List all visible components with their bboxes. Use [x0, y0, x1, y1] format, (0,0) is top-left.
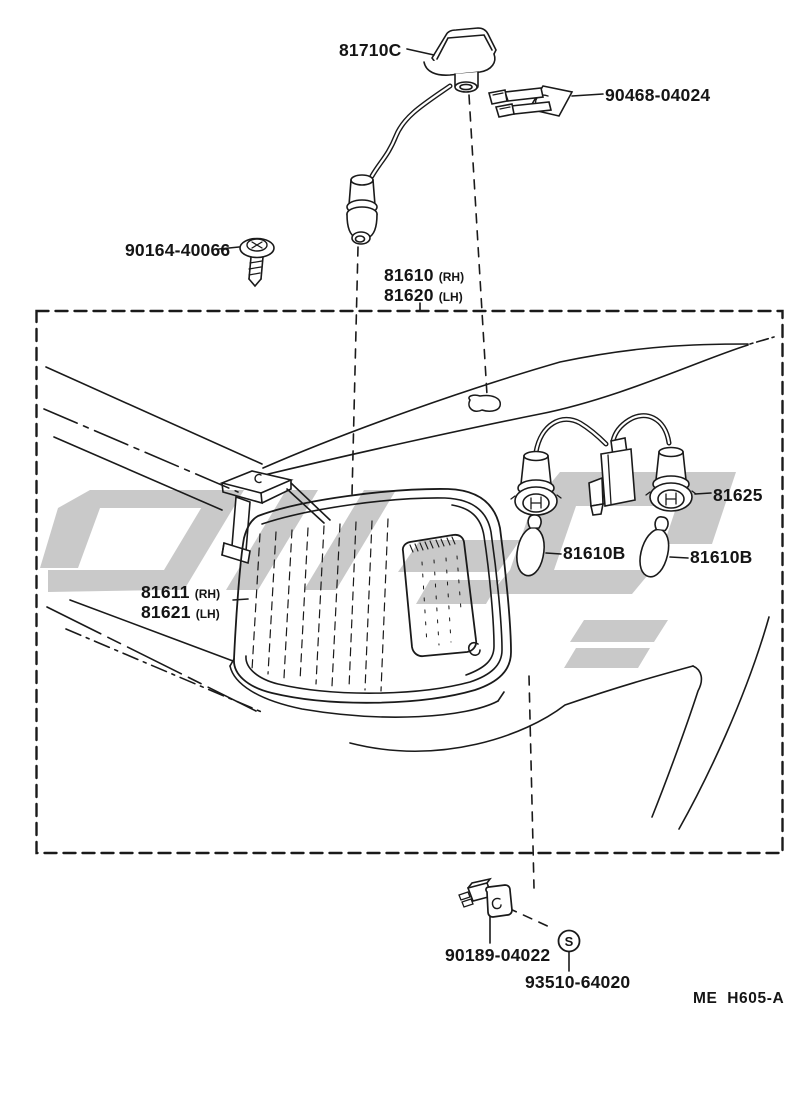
diagram-line-art: [0, 0, 800, 1106]
label-lamp-assy: 81610 (RH) 81620 (LH): [384, 266, 464, 306]
screw-drawing: [240, 239, 274, 287]
label-lamp-assy-lh: 81620 (LH): [384, 286, 464, 306]
label-clip: 90468-04024: [605, 86, 710, 104]
label-screw-set: 93510-64020: [525, 973, 630, 991]
label-marker-lamp: 81710C: [339, 41, 402, 59]
parts-diagram-page: 81710C 90468-04024 90164-40066 81610 (RH…: [0, 0, 800, 1106]
retainer-clip-drawing: [459, 879, 512, 917]
label-lens-lh: 81621 (LH): [141, 603, 220, 623]
label-bulb-right: 81610B: [690, 548, 753, 566]
page-code: ME H605-A: [693, 990, 784, 1008]
clip-drawing: [489, 86, 572, 117]
bulb-right: [638, 515, 672, 578]
s-symbol-letter: S: [561, 934, 577, 949]
label-lamp-assy-rh: 81610 (RH): [384, 266, 464, 286]
label-lens-rh: 81611 (RH): [141, 583, 220, 603]
marker-lamp-drawing: [347, 28, 496, 244]
bulb-left: [517, 515, 544, 576]
label-lens: 81611 (RH) 81621 (LH): [141, 583, 220, 623]
label-bulb-left: 81610B: [563, 544, 626, 562]
label-socket: 81625: [713, 486, 763, 504]
label-screw: 90164-40066: [125, 241, 230, 259]
label-retainer: 90189-04022: [445, 946, 550, 964]
